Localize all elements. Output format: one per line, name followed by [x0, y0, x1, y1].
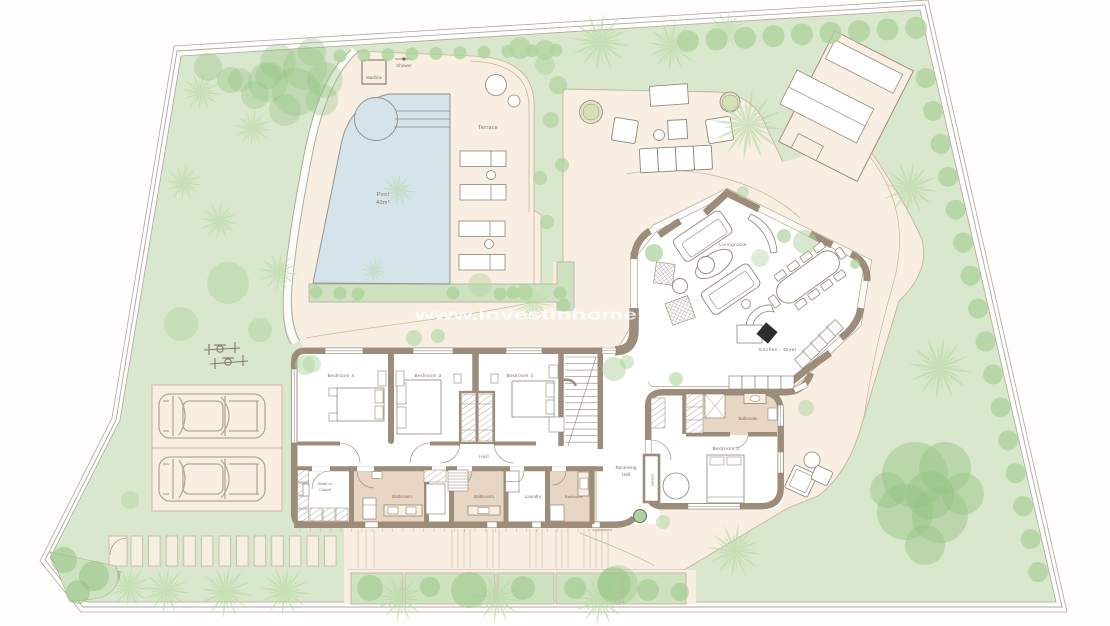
svg-text:Terrace: Terrace — [478, 125, 498, 131]
svg-text:Bathroom: Bathroom — [565, 494, 584, 499]
svg-text:Laundry: Laundry — [525, 494, 542, 499]
svg-text:Shower: Shower — [396, 63, 412, 68]
svg-text:Walk-in: Walk-in — [318, 481, 332, 486]
svg-text:Bathroom: Bathroom — [739, 416, 758, 421]
svg-text:www.investinhome: www.investinhome — [413, 308, 637, 324]
svg-text:40m²: 40m² — [376, 200, 390, 206]
svg-text:Hall: Hall — [479, 454, 489, 460]
svg-text:Bathroom: Bathroom — [392, 494, 412, 499]
svg-text:Bedroom 3: Bedroom 3 — [414, 373, 441, 379]
svg-text:Bedroom 2: Bedroom 2 — [506, 373, 533, 379]
svg-text:Kitchen - Diner: Kitchen - Diner — [759, 347, 797, 353]
svg-text:Receiving: Receiving — [615, 465, 636, 470]
svg-text:Livingroom: Livingroom — [719, 242, 746, 248]
svg-text:Bathroom: Bathroom — [474, 494, 494, 499]
svg-text:Closet: Closet — [651, 474, 656, 487]
svg-text:Closet: Closet — [319, 487, 332, 492]
svg-text:Hall: Hall — [622, 472, 630, 477]
svg-text:Bedroom 1: Bedroom 1 — [712, 446, 739, 452]
svg-text:Machine: Machine — [366, 75, 382, 80]
svg-text:Bedroom 4: Bedroom 4 — [327, 373, 354, 379]
